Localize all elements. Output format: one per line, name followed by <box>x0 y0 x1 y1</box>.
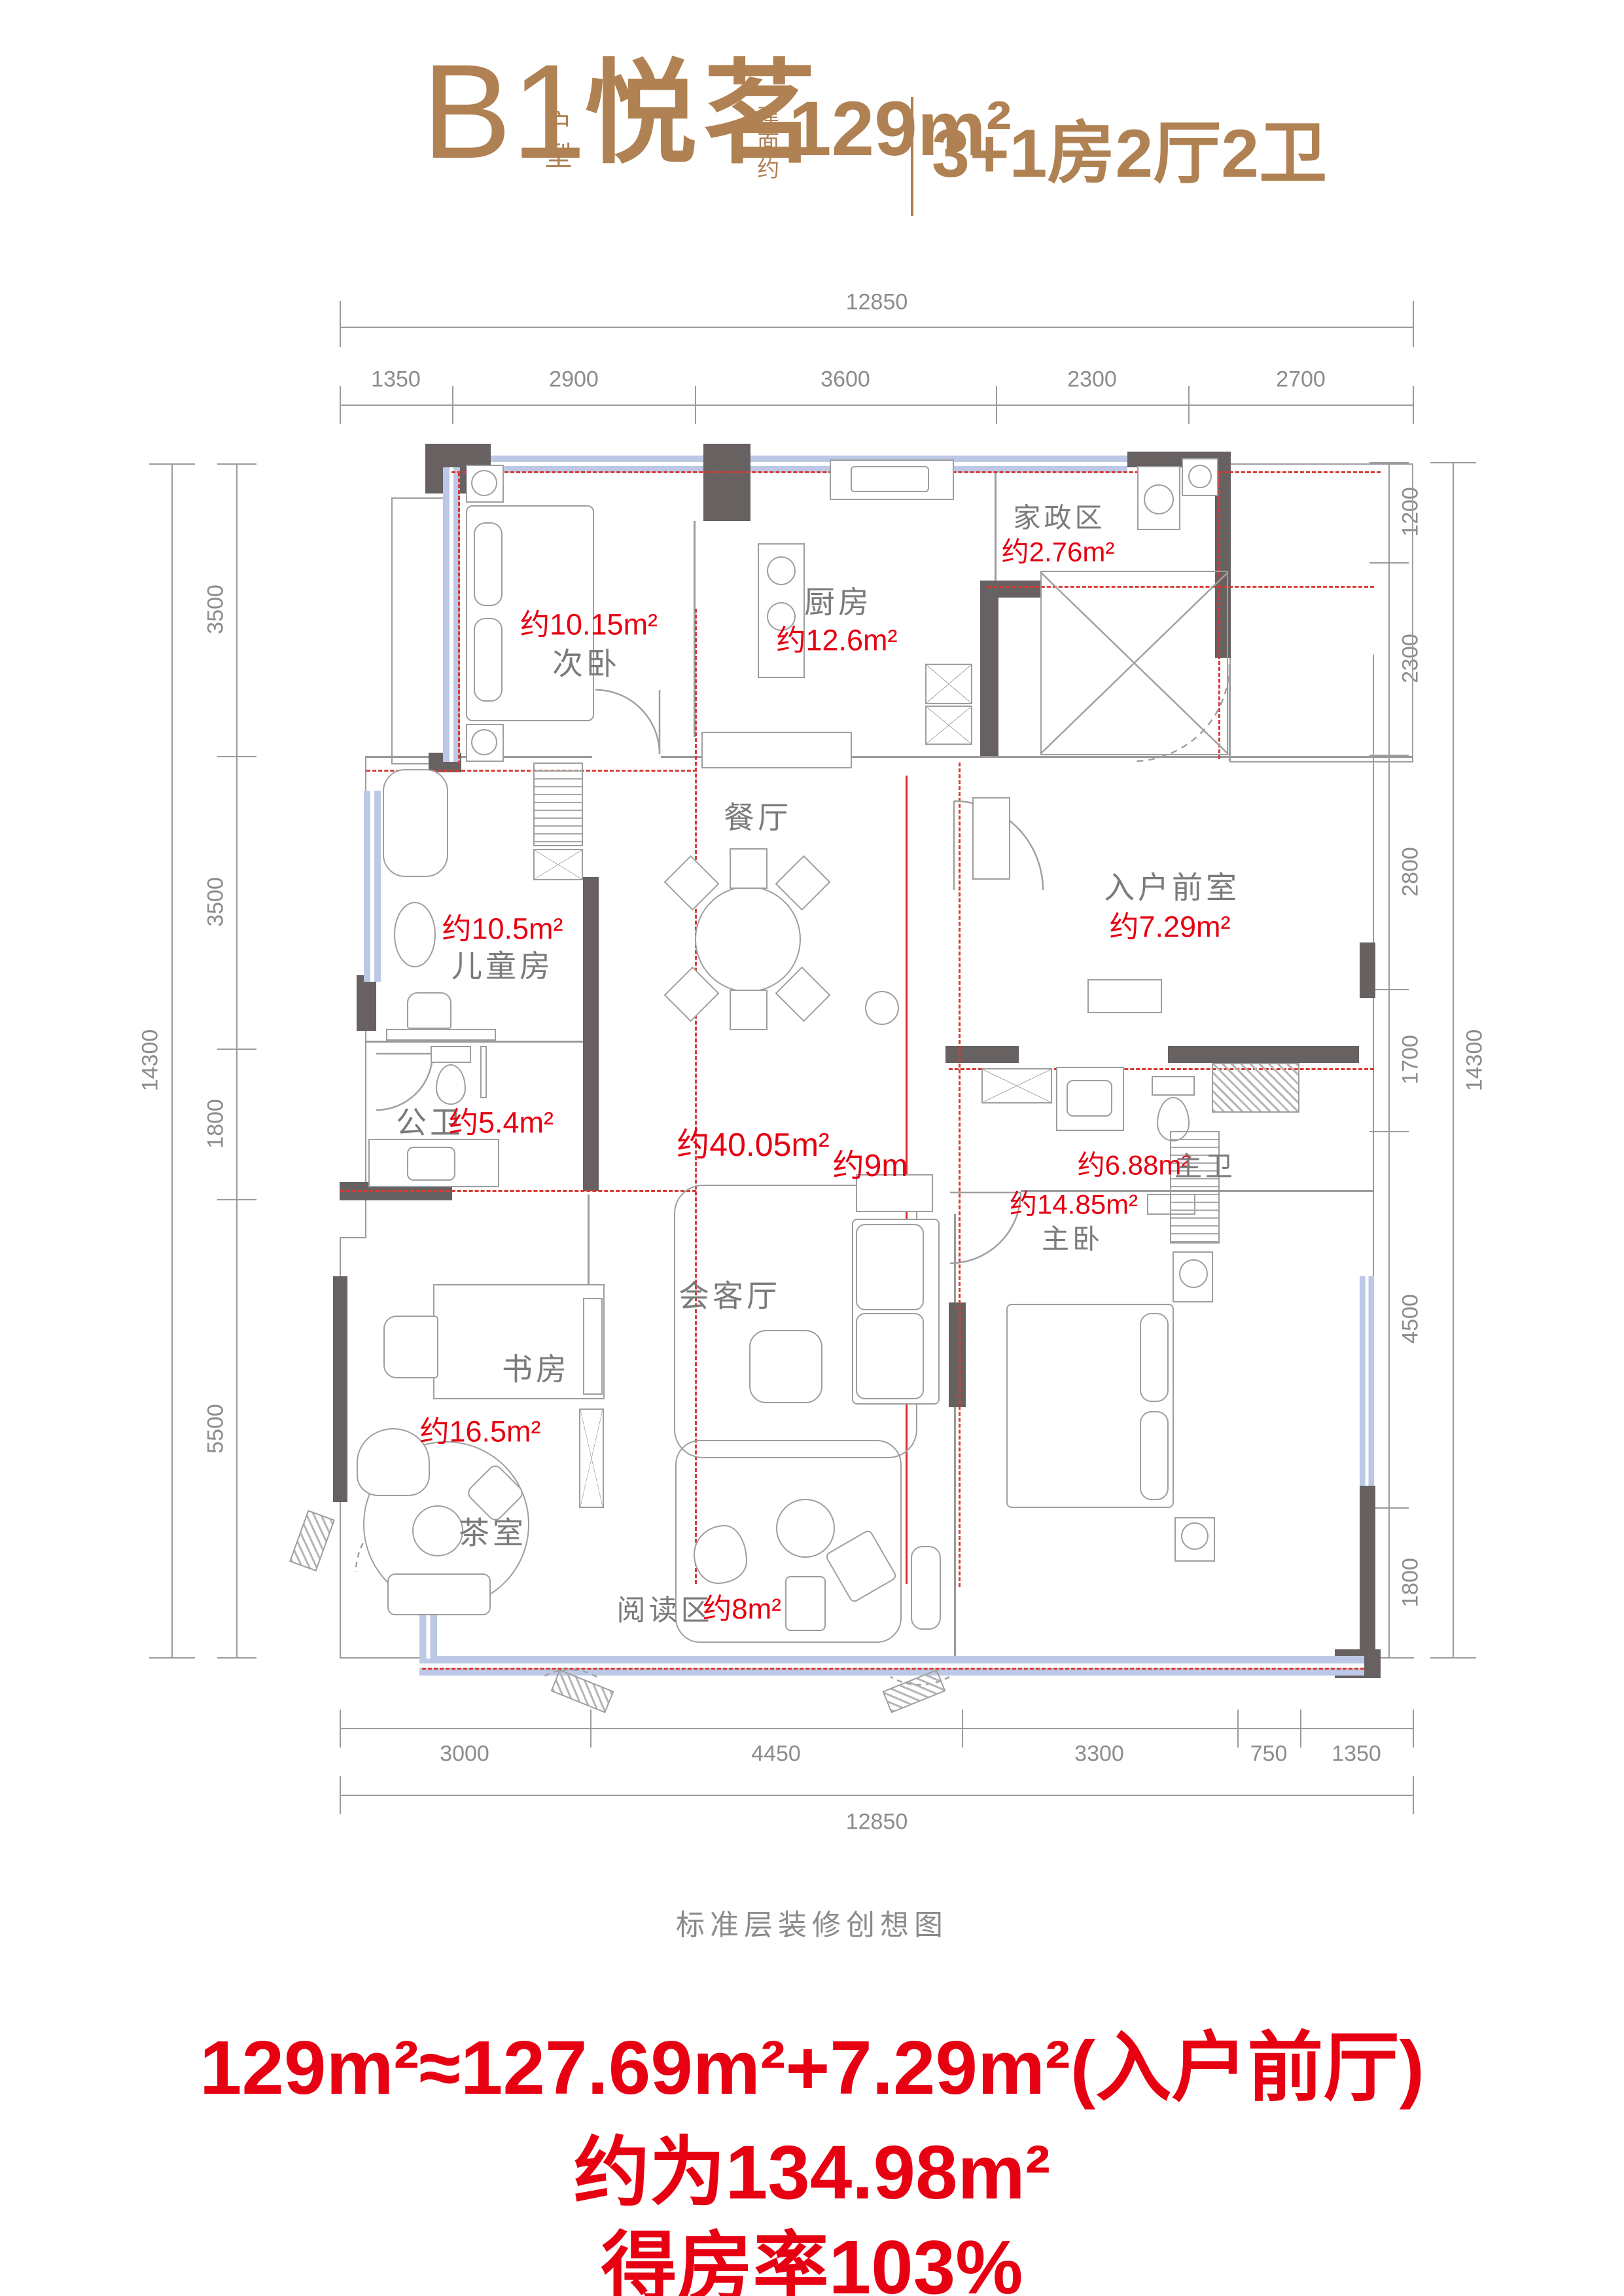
area-formula: 129m²≈127.69m²+7.29m²(入户前厅) <box>0 2006 1624 2116</box>
plan-caption: 标准层装修创想图 <box>0 1901 1624 1943</box>
pillow <box>1140 1411 1169 1500</box>
reading-chair <box>785 1576 826 1631</box>
toilet-tank <box>1152 1076 1195 1096</box>
room-area: 约14.85m² <box>1010 1183 1138 1223</box>
room-area: 约2.76m² <box>1002 530 1115 570</box>
desk-chair <box>383 1316 438 1378</box>
lamp-icon <box>1179 1259 1208 1288</box>
kids-bed <box>383 769 448 877</box>
room-area: 约10.15m² <box>520 601 658 643</box>
sofa-cushion <box>856 1224 924 1310</box>
tea-table-center <box>412 1505 463 1556</box>
room-area: 约7.29m² <box>1109 903 1230 946</box>
shower-glass <box>480 1046 487 1098</box>
pantry-cabinet <box>925 706 972 745</box>
pillow <box>474 618 503 702</box>
kids-desk <box>386 1029 496 1041</box>
room-area: 约8m² <box>703 1585 781 1627</box>
cabinet <box>533 849 583 880</box>
room-name: 茶室 <box>459 1508 527 1553</box>
side-table <box>865 991 899 1025</box>
room-area: 约12.6m² <box>776 617 897 659</box>
shoe-cabinet <box>972 797 1010 880</box>
elevator-shaft <box>1040 571 1228 755</box>
room-name: 主卫 <box>1174 1145 1236 1185</box>
toilet-tank <box>431 1046 471 1063</box>
room-name: 厨房 <box>804 577 872 622</box>
shower-area <box>1212 1063 1299 1113</box>
pantry-cabinet <box>925 664 972 704</box>
armchair <box>749 1330 822 1403</box>
lamp-icon <box>471 470 497 496</box>
room-area: 约6.88m² <box>1078 1143 1191 1183</box>
pillow <box>474 522 503 606</box>
vanity-sink <box>407 1147 455 1181</box>
room-area: 约16.5m² <box>419 1408 540 1450</box>
wardrobe <box>533 762 583 846</box>
console-table <box>1087 979 1162 1013</box>
room-name: 儿童房 <box>451 941 554 986</box>
room-area: 约5.4m² <box>449 1099 554 1141</box>
lamp-icon <box>1181 1522 1209 1550</box>
play-toy <box>694 1525 747 1584</box>
room-name: 主卧 <box>1042 1217 1103 1257</box>
utility-sink-bowl <box>1188 465 1212 488</box>
laundry-cabinet <box>981 1068 1052 1103</box>
vanity-sink <box>1067 1080 1112 1117</box>
room-name: 入户前室 <box>1104 863 1240 908</box>
bench <box>387 1573 491 1615</box>
area-approx: 约为134.98m² <box>0 2111 1624 2221</box>
room-area: 约40.05m² <box>677 1119 829 1166</box>
bookshelf <box>583 1298 603 1395</box>
room-span: 约9m <box>833 1139 908 1185</box>
egg-chair <box>394 902 436 967</box>
room-name: 会客厅 <box>679 1271 781 1316</box>
bench <box>911 1546 941 1630</box>
stove-burner-icon <box>767 556 796 585</box>
kitchen-sink <box>851 466 929 492</box>
reading-table <box>776 1499 835 1558</box>
pillow <box>1140 1313 1169 1402</box>
desk-chair <box>407 992 451 1029</box>
display-cabinet <box>579 1408 604 1508</box>
washer-drum-icon <box>1144 484 1174 514</box>
kitchen-peninsula <box>701 732 852 768</box>
room-name: 书房 <box>502 1344 570 1390</box>
lamp-icon <box>471 729 497 755</box>
sofa-cushion <box>856 1313 924 1399</box>
armchair <box>357 1428 430 1496</box>
room-name: 次卧 <box>552 639 620 684</box>
room-name: 餐厅 <box>724 793 792 838</box>
dining-chair <box>730 990 768 1030</box>
floor-plan-page: B1 户型 悦茗 建面约 129m² 3+1房2厅2卫 12850 1350 2… <box>0 0 1624 2296</box>
dining-table <box>695 886 801 992</box>
dining-chair <box>730 848 768 889</box>
usable-rate: 得房率103% <box>0 2206 1624 2296</box>
room-name: 阅读区 <box>617 1587 713 1628</box>
